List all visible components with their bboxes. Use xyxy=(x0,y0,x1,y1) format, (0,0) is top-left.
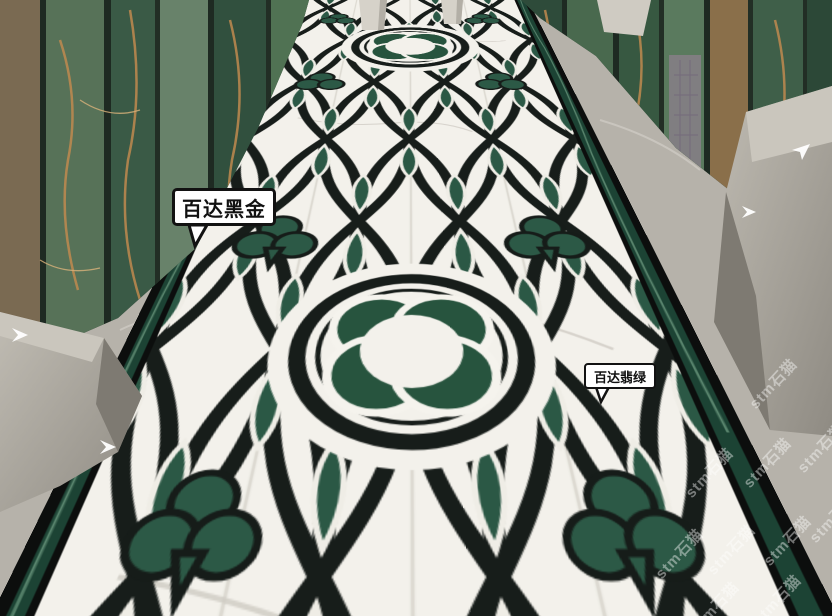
left-pedestal xyxy=(0,312,142,512)
marble-label-black-gold: 百达黑金 xyxy=(172,188,276,226)
marble-label-jade-green: 百达翡绿 xyxy=(584,363,656,389)
corridor-render: 百达黑金 百达翡绿 stm石猫 stm石猫 stm石猫 stm石猫 stm石猫 … xyxy=(0,0,832,616)
callout-tail-icon-2 xyxy=(594,386,614,406)
marble-label-jade-green-text: 百达翡绿 xyxy=(594,367,646,386)
marble-label-black-gold-text: 百达黑金 xyxy=(182,193,266,222)
small-pedestal xyxy=(597,0,651,36)
walls-overlay xyxy=(0,0,832,616)
distant-plinths xyxy=(359,0,463,30)
callout-tail-icon xyxy=(186,223,212,249)
